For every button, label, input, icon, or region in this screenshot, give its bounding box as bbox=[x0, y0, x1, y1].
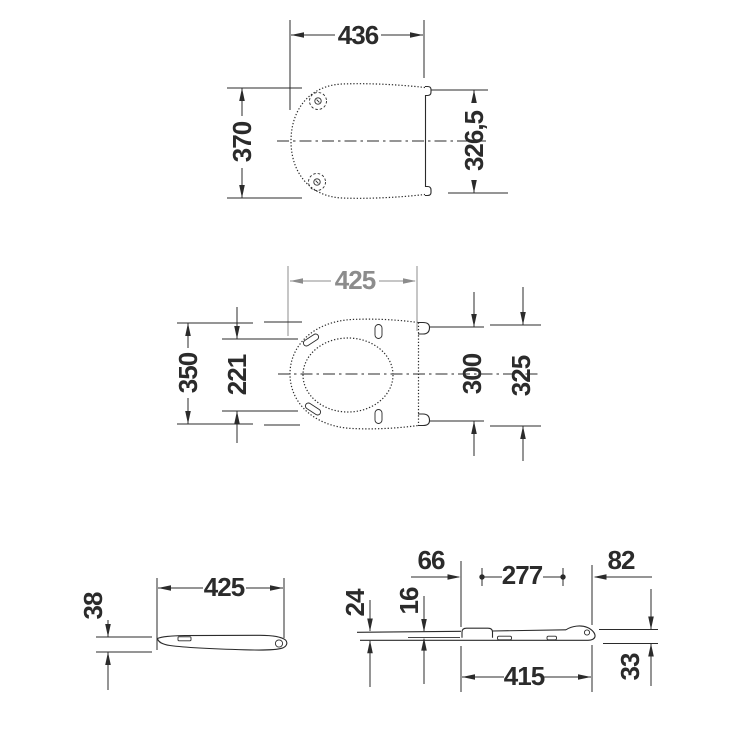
bumper bbox=[304, 402, 322, 416]
dim-38: 38 bbox=[78, 592, 152, 690]
screw-slot bbox=[317, 100, 320, 103]
bumper bbox=[178, 637, 191, 641]
dim-33-label: 33 bbox=[615, 653, 645, 680]
drawing-svg: 436 370 326,5 bbox=[0, 0, 750, 750]
dim-66: 66 bbox=[411, 545, 461, 580]
bumper bbox=[498, 636, 512, 640]
dim-350-label: 350 bbox=[173, 352, 203, 393]
dim-425-seat: 425 bbox=[288, 265, 417, 336]
dim-436: 436 bbox=[290, 20, 424, 110]
dim-300-label: 300 bbox=[457, 353, 487, 394]
dim-33: 33 bbox=[599, 589, 658, 686]
technical-drawing-canvas: 436 370 326,5 bbox=[0, 0, 750, 750]
seat-side-view: 425 38 bbox=[78, 572, 287, 690]
dim-24-label: 24 bbox=[340, 588, 370, 616]
dim-24: 24 bbox=[340, 588, 373, 687]
dim-277-label: 277 bbox=[502, 560, 543, 590]
lid-hinge-tab-top bbox=[425, 87, 431, 96]
dim-16-label: 16 bbox=[394, 587, 424, 614]
lid-hinge-tab-bottom bbox=[425, 187, 431, 196]
dim-221-label: 221 bbox=[222, 354, 252, 395]
seat-top-view: 425 350 221 bbox=[173, 265, 541, 461]
dim-326-5: 326,5 bbox=[431, 90, 508, 193]
bumper bbox=[302, 333, 320, 347]
dim-325-label: 325 bbox=[506, 355, 536, 396]
lid-hinge-hump bbox=[462, 628, 493, 638]
hinge-eye bbox=[584, 630, 589, 635]
seat-opening bbox=[303, 338, 393, 412]
dim-326-5-label: 326,5 bbox=[459, 110, 489, 171]
bumper bbox=[375, 410, 382, 424]
dim-221: 221 bbox=[222, 307, 298, 443]
dim-415: 415 bbox=[462, 661, 591, 691]
dim-425-seat-label: 425 bbox=[335, 265, 376, 295]
dim-415-label: 415 bbox=[504, 661, 545, 691]
dim-66-label: 66 bbox=[418, 545, 445, 575]
seat-profile bbox=[158, 635, 287, 650]
lid-top-view: 436 370 326,5 bbox=[227, 20, 508, 198]
lid-profile-top-rear bbox=[493, 630, 567, 631]
lid-rear-hook bbox=[566, 626, 595, 640]
bumper bbox=[375, 325, 382, 339]
dim-370-label: 370 bbox=[227, 121, 257, 162]
screw-slot bbox=[316, 181, 319, 184]
seat-hinge-tab-top bbox=[418, 323, 430, 335]
dim-16: 16 bbox=[394, 587, 427, 684]
dim-436-label: 436 bbox=[338, 20, 379, 50]
dim-82: 82 bbox=[594, 545, 653, 580]
hinge-pin bbox=[275, 640, 282, 647]
dim-82-label: 82 bbox=[608, 545, 635, 575]
dim-425-side: 425 bbox=[157, 572, 284, 650]
dim-38-label: 38 bbox=[78, 592, 108, 619]
bumper bbox=[547, 636, 557, 640]
lid-profile-top-front bbox=[357, 631, 461, 632]
dim-425-side-label: 425 bbox=[204, 572, 245, 602]
seat-hinge-tab-bottom bbox=[418, 414, 430, 426]
dim-277: 277 bbox=[479, 560, 565, 590]
lid-side-view: 66 277 82 24 bbox=[340, 545, 658, 692]
